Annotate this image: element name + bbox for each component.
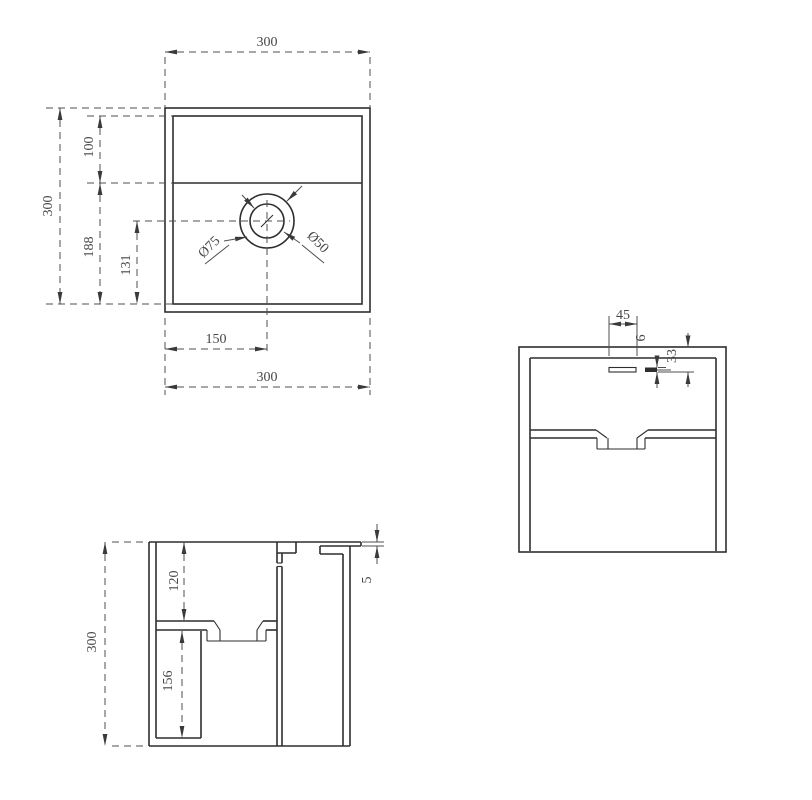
dim-side-slot-width: 45 — [616, 308, 630, 323]
side-drain-slant — [596, 430, 607, 438]
section-drain-slant — [257, 621, 263, 630]
dim-plan-basin-height: 188 — [82, 237, 97, 258]
side-drain-slant — [637, 430, 648, 438]
dim-plan-bottom-width: 300 — [257, 370, 278, 385]
dim-side-slot-height: 6 — [634, 335, 649, 342]
plan-outer-rim — [165, 108, 370, 312]
dim-plan-left-height: 300 — [41, 196, 56, 217]
drawing-svg: 300 300 100 188 131 150 300 Ø75 Ø50 — [0, 0, 812, 800]
plan-view: 300 300 100 188 131 150 300 Ø75 Ø50 — [41, 35, 370, 395]
dim-plan-drain-inner-dia: Ø50 — [304, 229, 332, 257]
dim-section-cavity-height: 156 — [161, 671, 176, 692]
section-view: 300 120 156 5 — [85, 524, 384, 746]
dim-section-rim-thickness: 5 — [360, 577, 375, 584]
dim-section-overall-height: 300 — [85, 632, 100, 653]
side-slot-section-mark — [645, 368, 657, 373]
dim-plan-top-width: 300 — [257, 35, 278, 50]
side-view: 45 6 33 — [519, 308, 726, 552]
section-drain-slant — [214, 621, 220, 630]
dim-plan-drain-outer-dia: Ø75 — [196, 234, 224, 262]
technical-drawing-canvas: 300 300 100 188 131 150 300 Ø75 Ø50 — [0, 0, 812, 800]
side-overflow-slot — [609, 368, 636, 373]
leader-dia75-ne — [287, 186, 302, 201]
leader-dia50-se — [284, 232, 300, 243]
leader-dia75-sw — [224, 237, 247, 241]
dim-plan-deck-depth: 100 — [82, 137, 97, 158]
dim-section-basin-depth: 120 — [167, 571, 182, 592]
dim-plan-drain-from-left: 150 — [206, 332, 227, 347]
dim-plan-drain-from-bottom: 131 — [119, 255, 134, 276]
dim-side-slot-from-top: 33 — [665, 349, 680, 363]
